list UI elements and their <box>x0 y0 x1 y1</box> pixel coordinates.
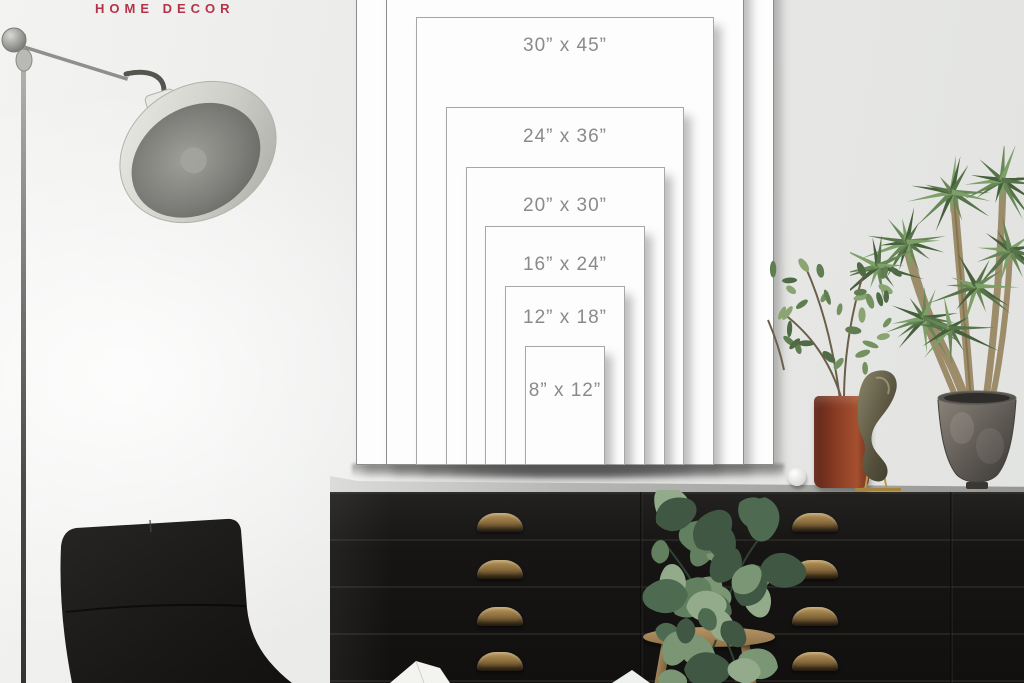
ficus-leaf <box>862 339 880 350</box>
dracaena-leaf <box>949 326 996 331</box>
drawer-cup-handle <box>477 652 523 671</box>
white-object <box>386 658 458 683</box>
sculpture-stand-base <box>855 488 901 491</box>
lamp-joint <box>2 28 26 52</box>
pothos-leaf <box>656 668 688 683</box>
white-object <box>610 668 652 683</box>
chair-notch <box>150 520 151 532</box>
ficus-leaf <box>879 265 890 279</box>
print-size-label: 24” x 36” <box>447 126 684 148</box>
ficus-leaf <box>881 316 893 329</box>
print-size-label: 8” x 12” <box>526 380 604 402</box>
ficus-leaf <box>782 277 797 284</box>
lamp-arm <box>25 46 128 78</box>
print-size-label: 16” x 24” <box>486 254 643 276</box>
ficus-leaf <box>798 340 815 346</box>
ficus-leaf <box>815 263 825 278</box>
dracaena-leaf <box>906 240 940 245</box>
ficus-leaf <box>883 290 889 303</box>
ficus-leaf <box>795 298 810 311</box>
print-size-label: 30” x 45” <box>417 35 714 57</box>
metal-pot <box>930 386 1024 492</box>
ficus-leaf <box>876 332 890 341</box>
floor-lamp-head <box>0 20 300 230</box>
drawer-cup-handle <box>477 607 523 626</box>
ficus-leaf <box>855 261 868 279</box>
ficus-leaf <box>854 348 871 360</box>
room-scene: HOME DECOR 30” x 45”24” x 36”20” x 30”16… <box>0 0 1024 683</box>
drawer-cup-handle <box>477 513 523 532</box>
lamp-arm-highlight <box>25 44 128 76</box>
lounge-chair <box>50 516 295 683</box>
pot-foot <box>966 482 988 489</box>
ficus-leaf <box>845 326 862 336</box>
ficus-leaf <box>787 321 793 338</box>
print-size-frame-8x12: 8” x 12” <box>525 346 605 465</box>
pothos-plant <box>626 490 814 683</box>
white-sphere <box>788 468 806 486</box>
print-size-label: 12” x 18” <box>506 307 623 329</box>
drawer-cup-handle <box>477 560 523 579</box>
dresser-divider <box>950 492 953 683</box>
ficus-leaf <box>875 291 885 307</box>
ficus-leaf <box>858 307 865 322</box>
ficus-leaf <box>796 257 811 274</box>
bronze-sculpture <box>843 366 907 494</box>
pothos-leaf <box>651 539 670 564</box>
ficus-leaf <box>785 284 798 296</box>
print-size-label: 20” x 30” <box>467 195 664 217</box>
ficus-leaf <box>836 303 844 316</box>
ficus-leaf <box>770 261 776 278</box>
ficus-leaf <box>888 265 903 278</box>
lamp-joint-knob <box>16 49 32 71</box>
